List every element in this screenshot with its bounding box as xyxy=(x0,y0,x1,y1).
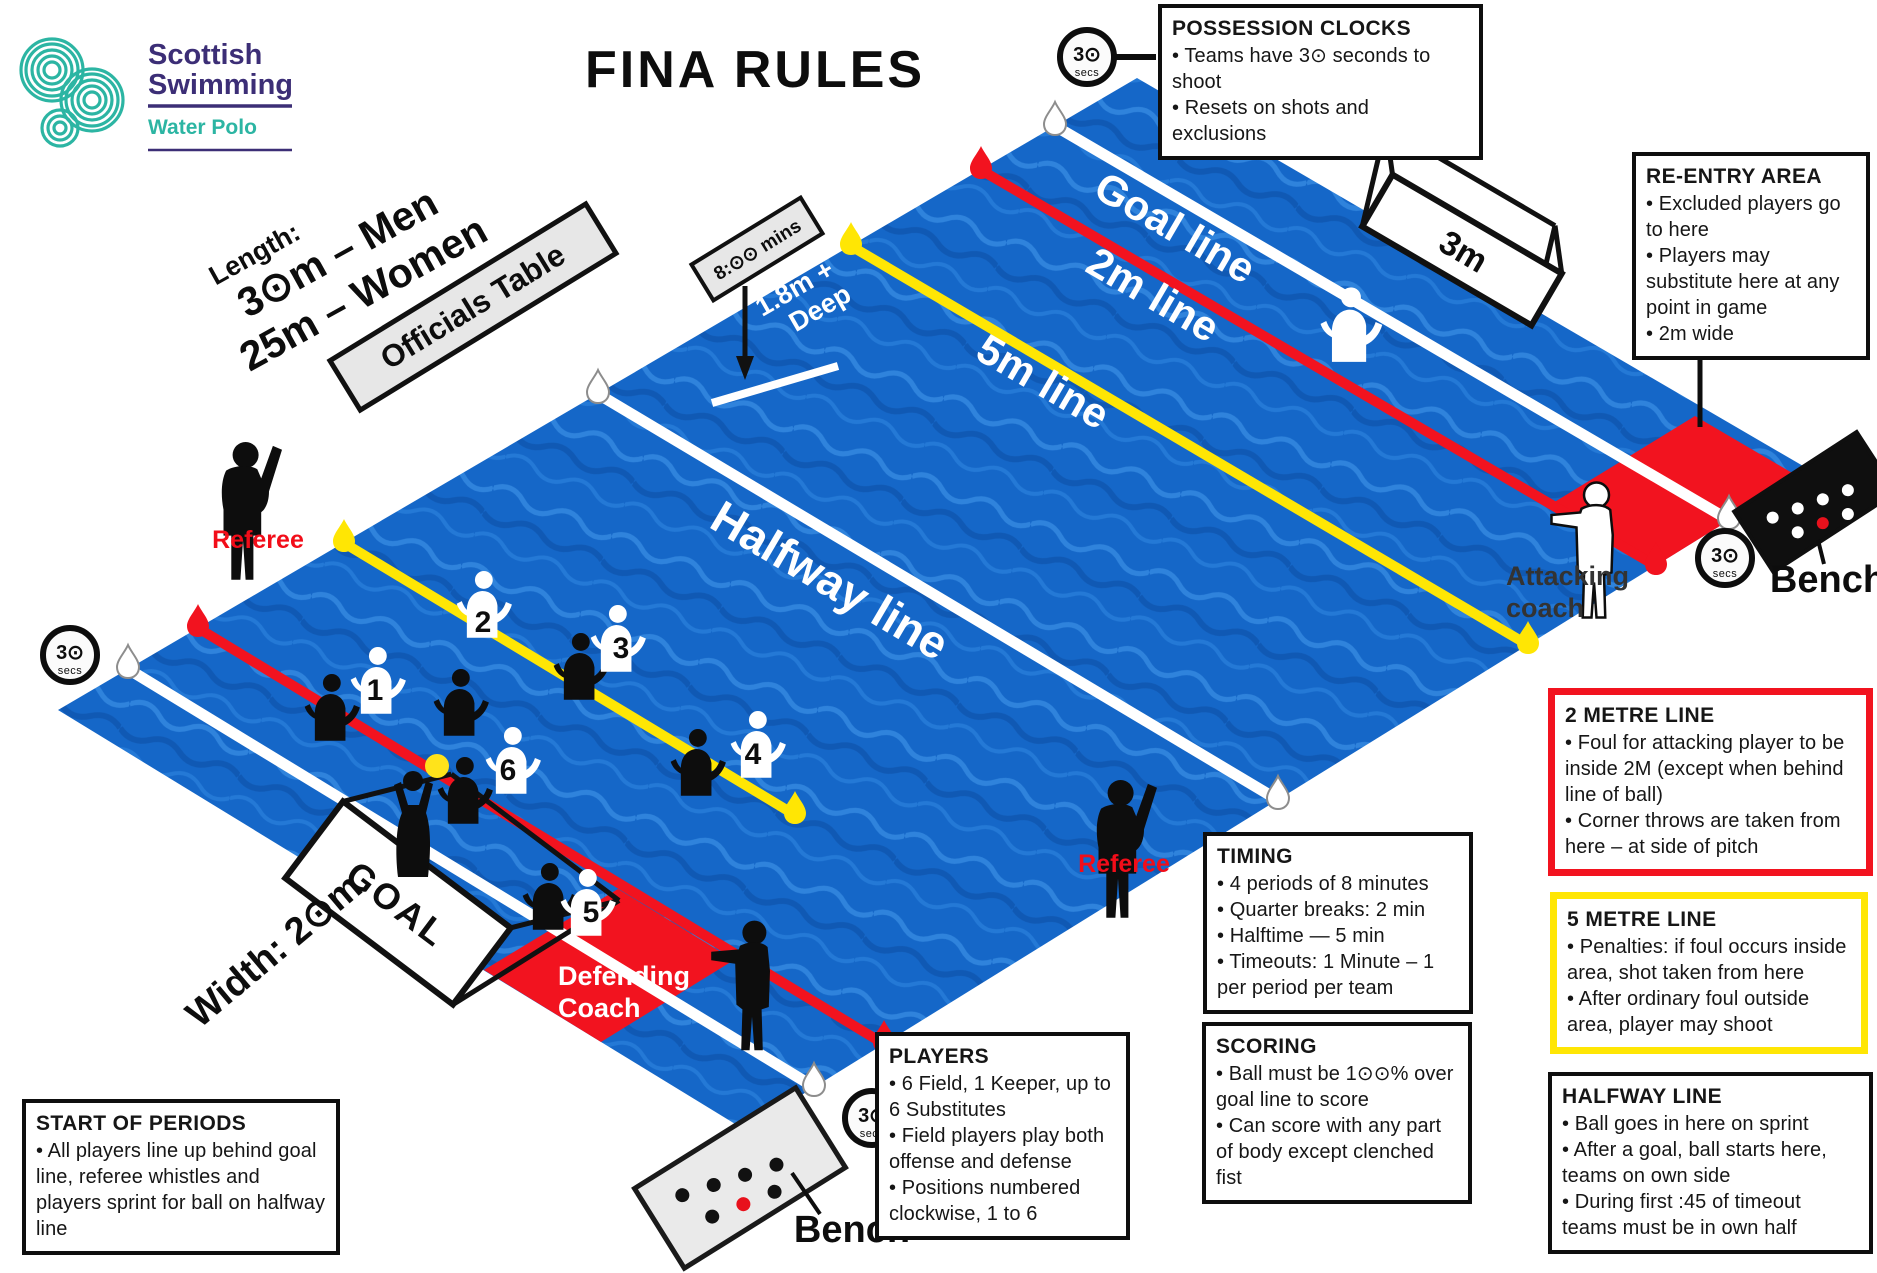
shot-clock-unit: secs xyxy=(1075,67,1100,79)
attacking-coach-label: Attacking xyxy=(1506,561,1629,591)
bullet-item: • Can score with any part of body except… xyxy=(1216,1113,1458,1191)
start-of-periods-box: START OF PERIODS • All players line up b… xyxy=(22,1099,340,1255)
scoring-box: SCORING • Ball must be 1⊙⊙% over goal li… xyxy=(1202,1022,1472,1204)
fina-rules-poster: Goal line 2m line 5m line Halfway line 3… xyxy=(0,0,1877,1273)
player-number: 2 xyxy=(475,606,492,639)
page-title: FINA RULES xyxy=(585,40,925,100)
halfway-line-box: HALFWAY LINE • Ball goes in here on spri… xyxy=(1548,1072,1873,1254)
bullet-item: • Foul for attacking player to be inside… xyxy=(1565,730,1856,808)
bullet-item: • Field players play both offense and de… xyxy=(889,1123,1116,1175)
timing-box: TIMING • 4 periods of 8 minutes • Quarte… xyxy=(1203,832,1473,1014)
goalkeeper-bottom xyxy=(394,771,433,877)
bullet-item: • Corner throws are taken from here – at… xyxy=(1565,808,1856,860)
player-number: 6 xyxy=(500,754,517,787)
shot-clock-icon: 3⊙ secs xyxy=(1698,531,1752,585)
bullet-item: • Quarter breaks: 2 min xyxy=(1217,897,1459,923)
players-box: PLAYERS • 6 Field, 1 Keeper, up to 6 Sub… xyxy=(875,1032,1130,1240)
logo-name-line1: Scottish xyxy=(148,39,262,71)
box-title: 5 METRE LINE xyxy=(1567,906,1851,933)
cone-icon xyxy=(840,222,862,255)
cone-icon xyxy=(587,370,609,403)
shot-clock-icon: 3⊙ secs xyxy=(43,628,97,682)
bench-label: Bench xyxy=(1770,559,1877,601)
bullet-item: • Resets on shots and exclusions xyxy=(1172,95,1469,147)
cone-icon xyxy=(333,519,355,552)
player-number: 5 xyxy=(583,896,600,929)
shot-clock-value: 3⊙ xyxy=(56,642,84,664)
logo-division: Water Polo xyxy=(148,116,257,139)
box-title: START OF PERIODS xyxy=(36,1110,326,1137)
referee-label: Referee xyxy=(212,526,304,554)
bullet-item: • All players line up behind goal line, … xyxy=(36,1138,326,1242)
ball xyxy=(425,754,449,778)
referee-label: Referee xyxy=(1078,850,1170,878)
bullet-item: • After a goal, ball starts here, teams … xyxy=(1562,1137,1859,1189)
width-annotation: Width: 2⊙m xyxy=(178,866,370,1036)
bullet-item: • Penalties: if foul occurs inside area,… xyxy=(1567,934,1851,986)
shot-clock-value: 3⊙ xyxy=(1073,44,1101,66)
cone-icon xyxy=(1044,102,1066,135)
defending-coach-label: Coach xyxy=(558,993,641,1023)
bullet-item: • 2m wide xyxy=(1646,321,1856,347)
player-number: 1 xyxy=(367,674,384,707)
box-title: RE-ENTRY AREA xyxy=(1646,163,1856,190)
bullet-item: • During first :45 of timeout teams must… xyxy=(1562,1189,1859,1241)
logo-spiral-icon xyxy=(21,39,123,146)
box-title: POSSESSION CLOCKS xyxy=(1172,15,1469,42)
bullet-item: • Excluded players go to here xyxy=(1646,191,1856,243)
bullet-item: • Positions numbered clockwise, 1 to 6 xyxy=(889,1175,1116,1227)
box-title: 2 METRE LINE xyxy=(1565,702,1856,729)
logo-name-line2: Swimming xyxy=(148,69,293,101)
box-title: SCORING xyxy=(1216,1033,1458,1060)
two-metre-line-box: 2 METRE LINE • Foul for attacking player… xyxy=(1548,688,1873,876)
shot-clock-icon: 3⊙ secs xyxy=(1060,30,1114,84)
box-title: HALFWAY LINE xyxy=(1562,1083,1859,1110)
bullet-item: • Teams have 3⊙ seconds to shoot xyxy=(1172,43,1469,95)
cone-icon xyxy=(187,604,209,637)
bullet-item: • Ball goes in here on sprint xyxy=(1562,1111,1859,1137)
attacking-coach-label: coach xyxy=(1506,593,1584,623)
shot-clock-unit: secs xyxy=(58,665,83,677)
width-label: Width: 2⊙m xyxy=(178,866,370,1036)
defending-coach-label: Defending xyxy=(558,961,690,991)
player-number: 3 xyxy=(613,632,630,665)
scottish-swimming-logo: Scottish Swimming Water Polo xyxy=(21,39,293,150)
shot-clock-value: 3⊙ xyxy=(1711,545,1739,567)
bullet-item: • Timeouts: 1 Minute – 1 per period per … xyxy=(1217,949,1459,1001)
box-title: PLAYERS xyxy=(889,1043,1116,1070)
bullet-item: • Halftime — 5 min xyxy=(1217,923,1459,949)
bullet-item: • Players may substitute here at any poi… xyxy=(1646,243,1856,321)
cone-icon xyxy=(117,645,139,678)
player-number: 4 xyxy=(745,738,762,771)
bullet-item: • Ball must be 1⊙⊙% over goal line to sc… xyxy=(1216,1061,1458,1113)
five-metre-line-box: 5 METRE LINE • Penalties: if foul occurs… xyxy=(1550,892,1868,1054)
bullet-item: • After ordinary foul outside area, play… xyxy=(1567,986,1851,1038)
box-title: TIMING xyxy=(1217,843,1459,870)
cone-icon xyxy=(970,146,992,179)
bullet-item: • 6 Field, 1 Keeper, up to 6 Substitutes xyxy=(889,1071,1116,1123)
possession-clocks-box: POSSESSION CLOCKS • Teams have 3⊙ second… xyxy=(1158,4,1483,160)
bullet-item: • 4 periods of 8 minutes xyxy=(1217,871,1459,897)
shot-clock-unit: secs xyxy=(1713,568,1738,580)
reentry-area-box: RE-ENTRY AREA • Excluded players go to h… xyxy=(1632,152,1870,360)
referee-figure-left xyxy=(222,442,282,580)
